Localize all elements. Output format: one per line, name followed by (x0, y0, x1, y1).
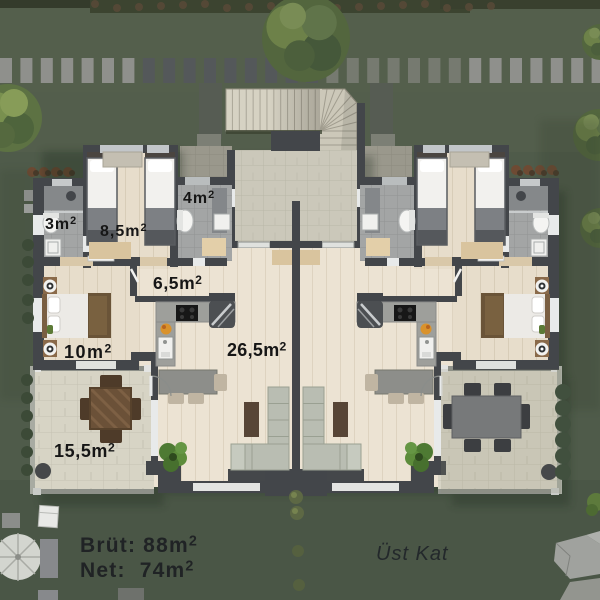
svg-text:6,5m2: 6,5m2 (153, 273, 203, 293)
svg-text:26,5m2: 26,5m2 (227, 340, 287, 360)
svg-text:Üst Kat: Üst Kat (376, 543, 449, 565)
svg-text:8,5m2: 8,5m2 (100, 222, 148, 240)
svg-text:Net: 74m2: Net: 74m2 (80, 559, 195, 582)
svg-text:15,5m2: 15,5m2 (54, 441, 115, 461)
svg-text:Brüt: 88m2: Brüt: 88m2 (80, 534, 198, 557)
